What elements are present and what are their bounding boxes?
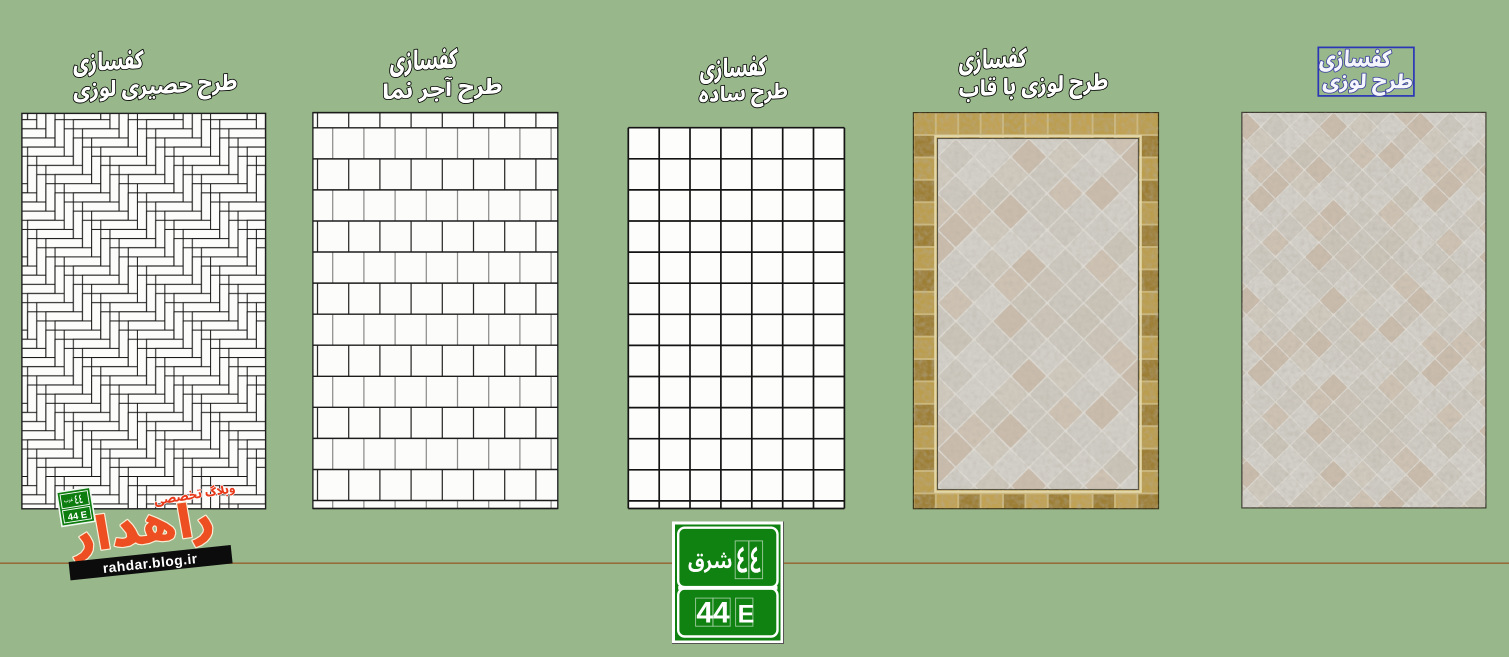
svg-text:E: E	[738, 601, 755, 629]
svg-text:44: 44	[696, 597, 730, 630]
